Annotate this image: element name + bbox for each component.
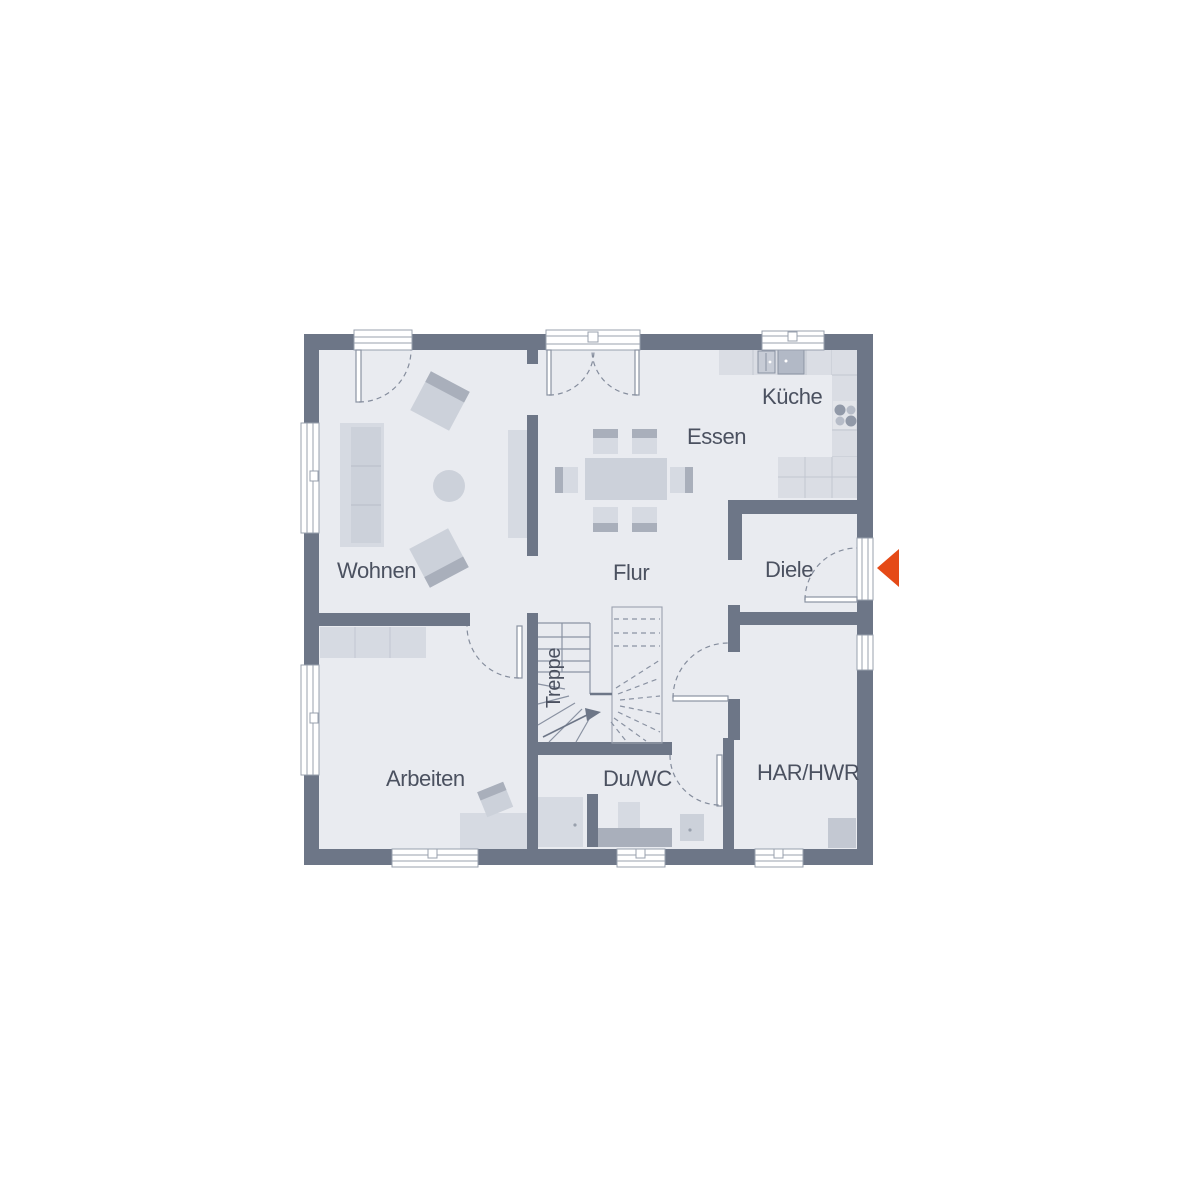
wall-har-left-mid <box>728 699 740 740</box>
office-window-bottom <box>392 849 478 867</box>
washbasin-drain <box>688 828 691 831</box>
window-handle <box>310 471 318 481</box>
wall-diele-left <box>728 500 742 560</box>
desk <box>460 813 527 849</box>
wall-duwc-har <box>723 738 734 849</box>
burner <box>836 417 845 426</box>
dining-chair <box>563 467 578 493</box>
dining-chair <box>670 467 685 493</box>
utility-window-right <box>857 635 873 670</box>
oven-knob <box>785 360 788 363</box>
terrace-door-window <box>354 330 412 350</box>
entrance-arrow-icon <box>877 549 899 587</box>
window-handle <box>588 332 598 342</box>
dining-table <box>585 458 667 500</box>
room-label-essen: Essen <box>687 424 746 449</box>
shelf <box>320 627 426 658</box>
wall-stair-left <box>527 613 538 849</box>
window-handle <box>774 849 783 858</box>
chair-back <box>593 429 618 438</box>
wall-left <box>304 334 319 865</box>
floor-plan: Wohnen Essen Küche Flur Diele Arbeiten D… <box>0 0 1200 1200</box>
bathroom-window <box>617 849 665 867</box>
cooktop-icon <box>833 401 857 429</box>
utility-window-bottom <box>755 849 803 867</box>
shower-drain <box>573 823 576 826</box>
room-label-harhwr: HAR/HWR <box>757 760 859 785</box>
coffee-table <box>433 470 465 502</box>
window-handle <box>428 849 437 858</box>
washing-machine <box>828 818 856 848</box>
room-label-duwc: Du/WC <box>603 766 672 791</box>
sink-drain <box>769 361 772 364</box>
room-label-arbeiten: Arbeiten <box>386 766 465 791</box>
wall-wohnen-arbeiten <box>319 613 470 626</box>
room-label-kueche: Küche <box>762 384 823 409</box>
sofa-cushions <box>351 427 381 543</box>
burner <box>846 416 857 427</box>
office-window-left <box>301 665 319 775</box>
kitchen-window <box>762 331 824 350</box>
wall-har-left-upper <box>728 605 740 652</box>
burner <box>835 405 846 416</box>
room-label-diele: Diele <box>765 557 813 582</box>
chair-back <box>632 429 657 438</box>
french-door-window <box>546 330 640 350</box>
dining-chair <box>593 438 618 454</box>
living-room-window <box>301 423 319 533</box>
chair-back <box>555 467 563 493</box>
oven-icon <box>778 350 804 374</box>
room-label-treppe: Treppe <box>543 648 565 709</box>
washbasin <box>680 814 704 841</box>
burner <box>847 406 856 415</box>
window-handle <box>310 713 318 723</box>
wall-stair-bottom <box>527 742 672 755</box>
shower <box>538 797 583 847</box>
dining-chair <box>632 438 657 454</box>
room-label-flur: Flur <box>613 560 649 585</box>
toilet <box>618 802 640 828</box>
wall-kueche-diele <box>728 500 873 514</box>
dining-chair <box>632 507 657 523</box>
vanity-ledge <box>598 828 672 847</box>
chair-back <box>593 523 618 532</box>
floor-plan-page: Wohnen Essen Küche Flur Diele Arbeiten D… <box>0 0 1200 1200</box>
tv-board <box>508 430 527 538</box>
window-handle <box>788 332 797 341</box>
chair-back <box>685 467 693 493</box>
chair-back <box>632 523 657 532</box>
room-label-wohnen: Wohnen <box>337 558 416 583</box>
tv-wall <box>527 415 538 556</box>
shower-partition <box>587 794 598 847</box>
wall-diele-har <box>740 612 873 625</box>
window-handle <box>636 849 645 858</box>
dining-chair <box>593 507 618 523</box>
wall-stub-top <box>527 350 538 364</box>
